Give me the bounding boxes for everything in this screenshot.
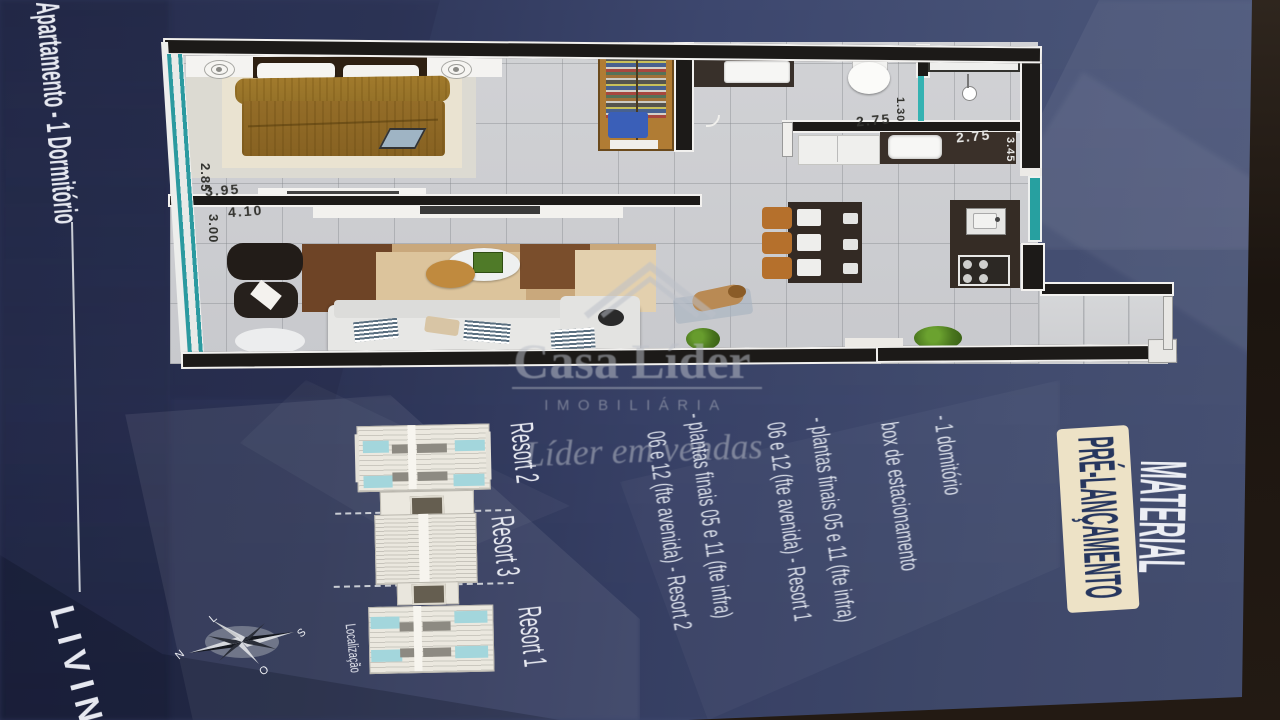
svg-text:S: S [295, 626, 308, 640]
svg-text:N: N [173, 648, 187, 662]
svg-text:O: O [257, 663, 272, 678]
